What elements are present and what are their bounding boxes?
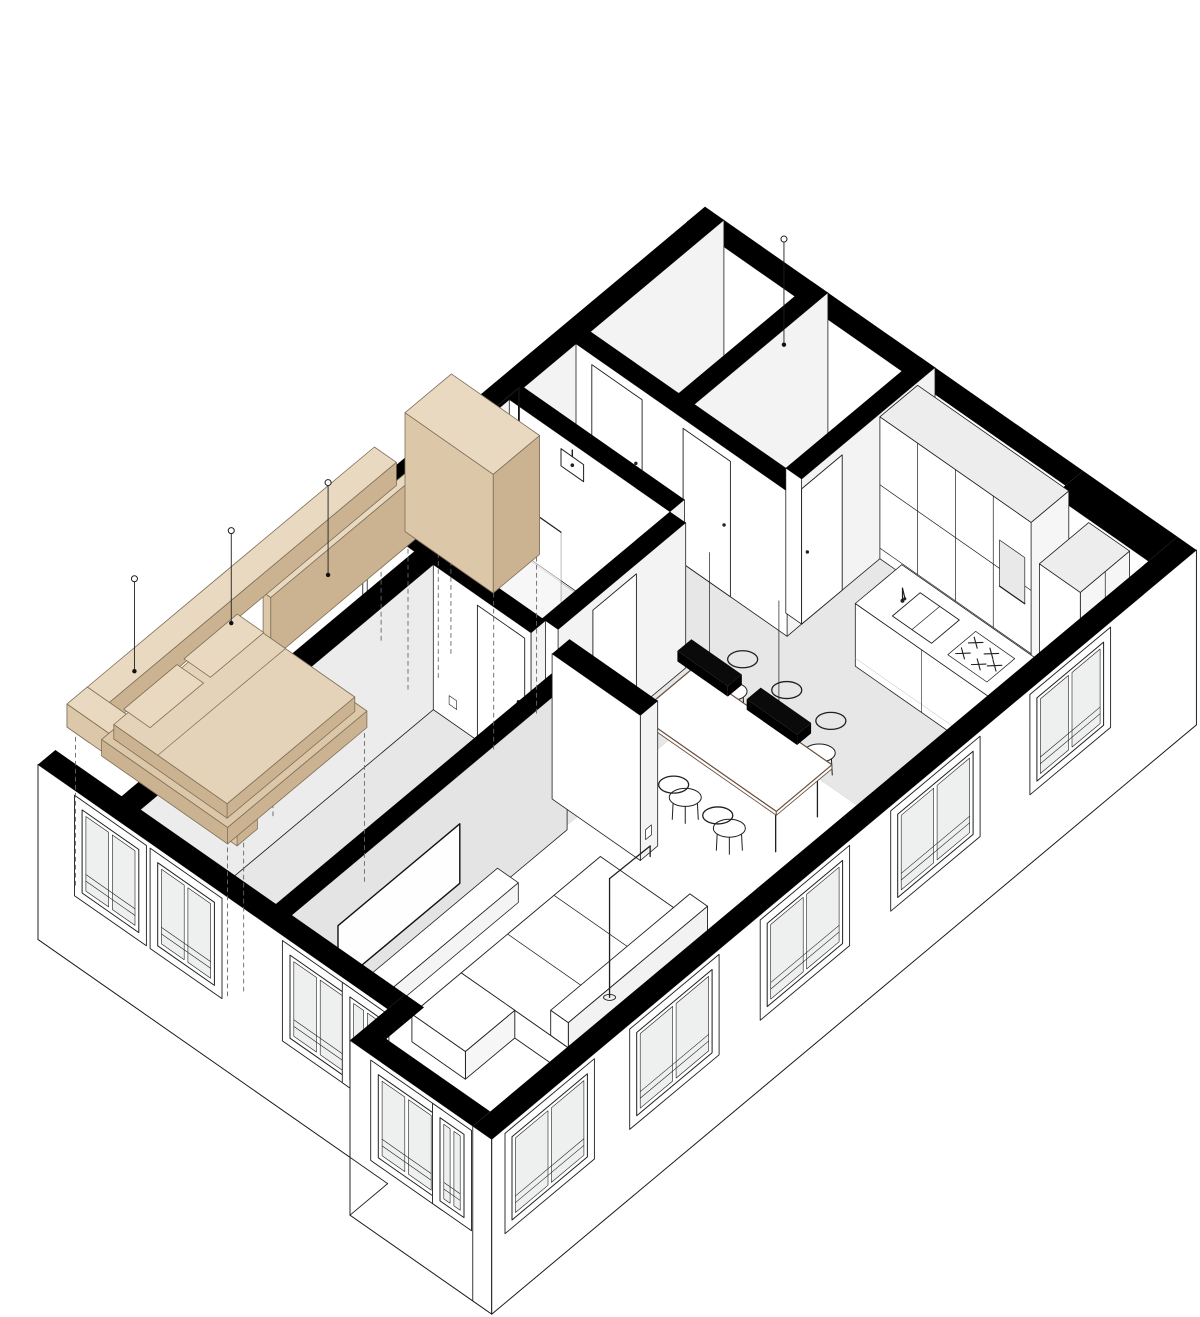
axonometric-floor-plan: [0, 0, 1200, 1317]
floor-plan-drawing: [0, 0, 1200, 1317]
